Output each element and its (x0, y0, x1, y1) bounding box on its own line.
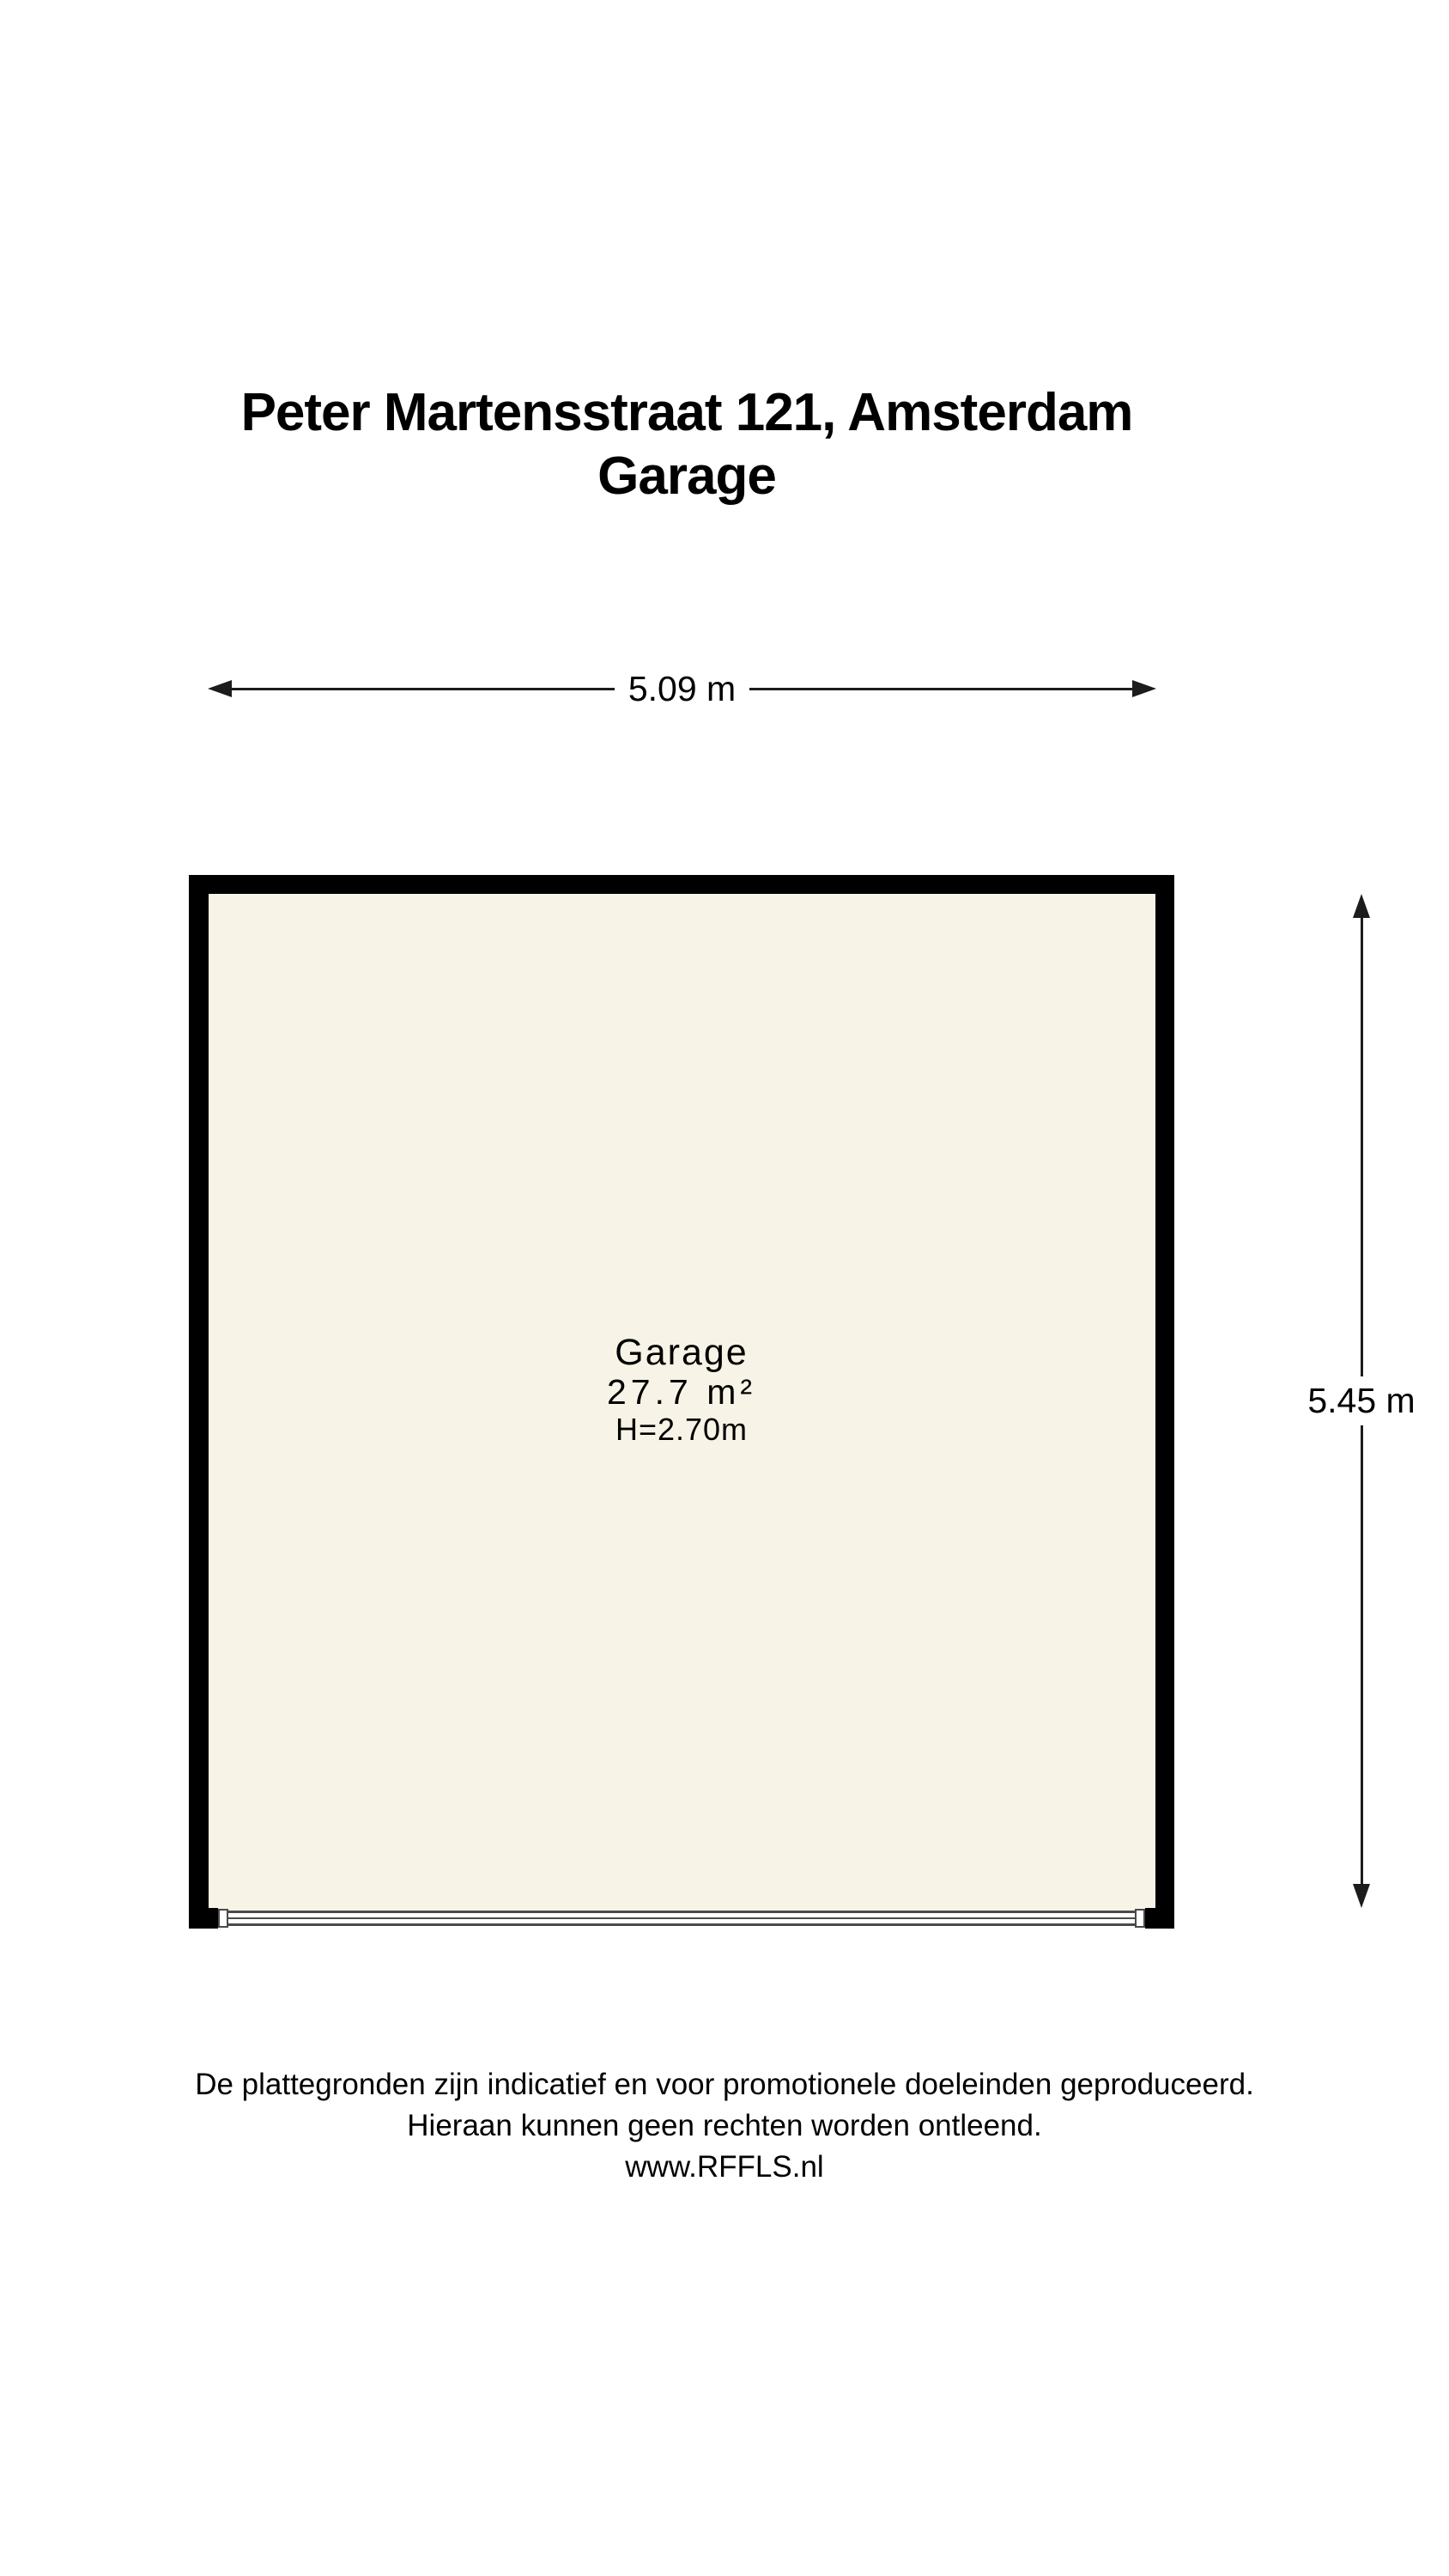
room-name: Garage (510, 1333, 853, 1372)
width-dimension-label: 5.09 m (615, 671, 749, 707)
door-jamb-left (218, 1909, 228, 1928)
arrow-left-icon (208, 680, 232, 697)
arrow-up-icon (1353, 894, 1370, 918)
dimension-line-segment (1361, 918, 1363, 1376)
floorplan-page: Peter Martensstraat 121, Amsterdam Garag… (0, 0, 1449, 2576)
disclaimer: De plattegronden zijn indicatief en voor… (0, 2064, 1449, 2188)
plan-title-room: Garage (0, 445, 1373, 508)
room-ceiling-height: H=2.70m (510, 1412, 853, 1448)
garage-door (228, 1911, 1135, 1926)
dimension-line-segment (749, 688, 1132, 690)
arrow-right-icon (1132, 680, 1156, 697)
disclaimer-line-1: De plattegronden zijn indicatief en voor… (0, 2064, 1449, 2105)
website-url: www.RFFLS.nl (0, 2147, 1449, 2188)
width-dimension: 5.09 m (208, 675, 1156, 702)
height-dimension-label: 5.45 m (1307, 1376, 1415, 1425)
disclaimer-line-2: Hieraan kunnen geen rechten worden ontle… (0, 2105, 1449, 2147)
plan-title: Peter Martensstraat 121, Amsterdam Garag… (0, 381, 1373, 508)
wall-corner-block-left (189, 1908, 218, 1929)
dimension-line-segment (232, 688, 615, 690)
wall-corner-block-right (1145, 1908, 1174, 1929)
garage-door-midline (228, 1917, 1135, 1919)
arrow-down-icon (1353, 1884, 1370, 1908)
door-jamb-right (1135, 1909, 1145, 1928)
room-label: Garage 27.7 m² H=2.70m (510, 1333, 853, 1448)
plan-title-address: Peter Martensstraat 121, Amsterdam (0, 381, 1373, 445)
room-area: 27.7 m² (510, 1372, 853, 1412)
height-dimension: 5.45 m (1348, 894, 1375, 1908)
dimension-line-segment (1361, 1425, 1363, 1884)
